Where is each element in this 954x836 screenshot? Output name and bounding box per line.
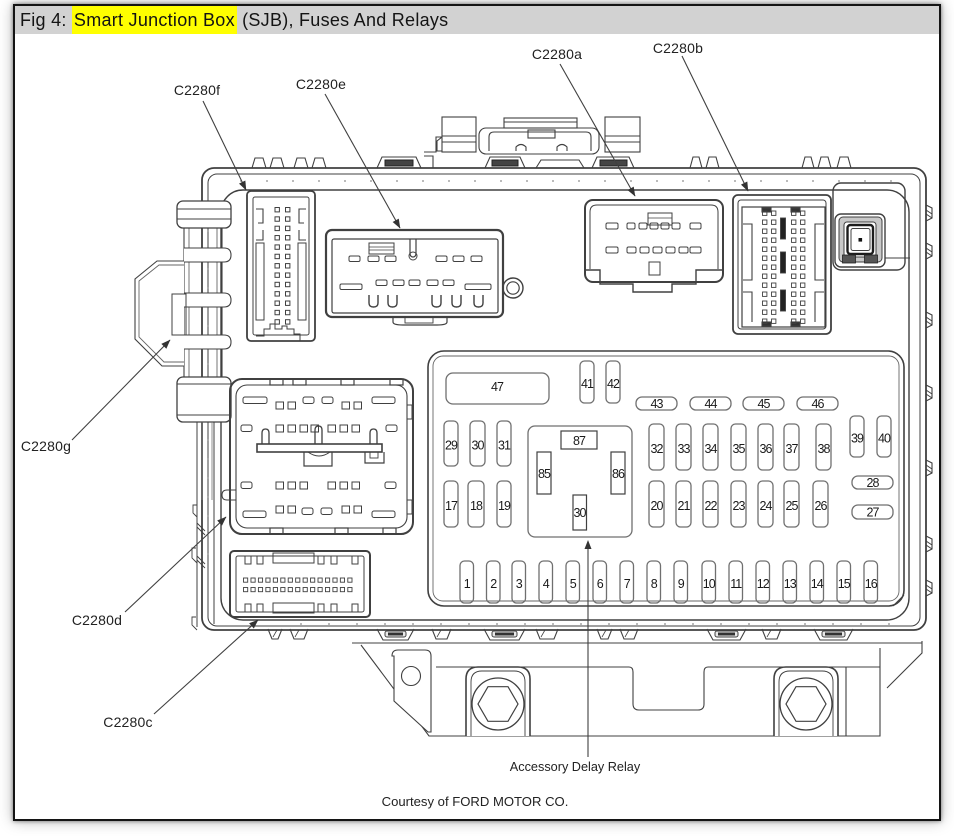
svg-text:4: 4 [543,577,550,591]
svg-text:45: 45 [758,397,771,411]
svg-text:87: 87 [573,434,586,448]
svg-text:28: 28 [867,476,880,490]
svg-text:Accessory Delay Relay: Accessory Delay Relay [510,760,641,774]
svg-text:C2280b: C2280b [653,40,703,56]
svg-text:39: 39 [851,432,864,446]
svg-text:30: 30 [472,439,485,453]
svg-text:21: 21 [678,499,691,513]
svg-text:37: 37 [786,442,799,456]
svg-text:42: 42 [607,377,620,391]
svg-text:9: 9 [678,577,685,591]
svg-text:16: 16 [865,577,878,591]
svg-text:43: 43 [651,397,664,411]
svg-text:17: 17 [445,499,458,513]
svg-text:C2280f: C2280f [174,82,220,98]
svg-text:C2280a: C2280a [532,46,582,62]
svg-text:26: 26 [815,499,828,513]
svg-text:10: 10 [703,577,716,591]
svg-text:32: 32 [651,442,664,456]
svg-text:24: 24 [760,499,773,513]
svg-text:22: 22 [705,499,718,513]
svg-text:36: 36 [760,442,773,456]
svg-text:44: 44 [705,397,718,411]
svg-text:23: 23 [733,499,746,513]
svg-text:Courtesy of FORD MOTOR CO.: Courtesy of FORD MOTOR CO. [382,794,569,809]
svg-text:5: 5 [570,577,577,591]
svg-text:6: 6 [597,577,604,591]
svg-text:14: 14 [811,577,824,591]
svg-text:8: 8 [651,577,658,591]
svg-text:25: 25 [786,499,799,513]
svg-text:3: 3 [516,577,523,591]
svg-text:13: 13 [784,577,797,591]
svg-text:18: 18 [470,499,483,513]
svg-text:46: 46 [812,397,825,411]
svg-text:2: 2 [490,577,497,591]
svg-text:C2280e: C2280e [296,76,346,92]
svg-text:11: 11 [730,577,742,591]
svg-text:31: 31 [498,439,511,453]
svg-text:1: 1 [464,577,471,591]
svg-text:86: 86 [612,467,625,481]
svg-text:35: 35 [733,442,746,456]
svg-text:C2280g: C2280g [21,438,71,454]
svg-text:27: 27 [867,506,880,520]
svg-text:15: 15 [838,577,851,591]
svg-text:34: 34 [705,442,718,456]
svg-text:40: 40 [878,432,891,446]
svg-text:47: 47 [491,380,504,394]
svg-text:85: 85 [538,467,551,481]
svg-text:20: 20 [651,499,664,513]
svg-text:38: 38 [818,442,831,456]
svg-text:30: 30 [574,506,587,520]
svg-text:33: 33 [678,442,691,456]
svg-text:C2280c: C2280c [103,714,152,730]
svg-text:12: 12 [757,577,770,591]
svg-text:C2280d: C2280d [72,612,122,628]
svg-text:19: 19 [498,499,511,513]
svg-text:29: 29 [445,439,458,453]
svg-text:7: 7 [624,577,631,591]
svg-text:41: 41 [581,377,594,391]
